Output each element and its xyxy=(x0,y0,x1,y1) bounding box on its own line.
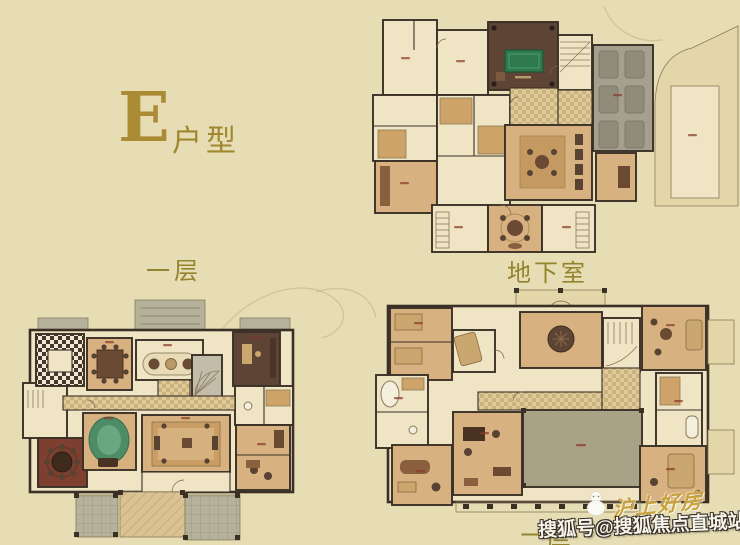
guest-bedroom xyxy=(236,425,290,490)
first-floor-label: 一层 xyxy=(146,251,202,286)
basement-stairs xyxy=(558,35,592,90)
bedroom-northwest xyxy=(390,308,452,380)
upper-hall xyxy=(520,312,602,368)
round-dining-room xyxy=(38,438,87,487)
family-room xyxy=(453,412,522,495)
kitchen-checker xyxy=(36,334,84,386)
second-floor-floorplan xyxy=(376,288,734,512)
void-over-living-room xyxy=(521,408,644,488)
garage xyxy=(593,45,653,151)
bathroom-east xyxy=(656,373,702,446)
flyer-canvas: E 户型 一层 地下室 二层 沪上好房 搜狐号@搜狐焦点直城站 xyxy=(0,0,740,545)
first-floor-floorplan xyxy=(23,300,293,540)
basement-main-hall xyxy=(505,125,592,200)
floorplan-graphics xyxy=(0,0,740,545)
basement-label: 地下室 xyxy=(507,253,588,288)
curved-staircase xyxy=(192,355,222,400)
sunken-courtyard-left xyxy=(432,205,488,252)
bedroom-southwest xyxy=(392,445,452,505)
basement-floorplan xyxy=(373,20,738,252)
basement-tea-room xyxy=(488,205,542,252)
unit-type-label: 户型 xyxy=(172,116,240,160)
sunken-courtyard-right xyxy=(542,205,595,252)
bedroom-northeast xyxy=(642,306,706,370)
living-room xyxy=(142,415,230,472)
upper-stairs xyxy=(603,318,640,372)
music-room xyxy=(83,413,136,470)
unit-letter-label: E xyxy=(118,84,170,152)
billiard-room xyxy=(488,22,558,90)
bedroom-center-left xyxy=(453,330,495,372)
dining-room xyxy=(87,338,132,390)
study-room xyxy=(233,332,280,386)
master-bathroom xyxy=(376,375,428,448)
rear-walkway xyxy=(120,492,185,537)
